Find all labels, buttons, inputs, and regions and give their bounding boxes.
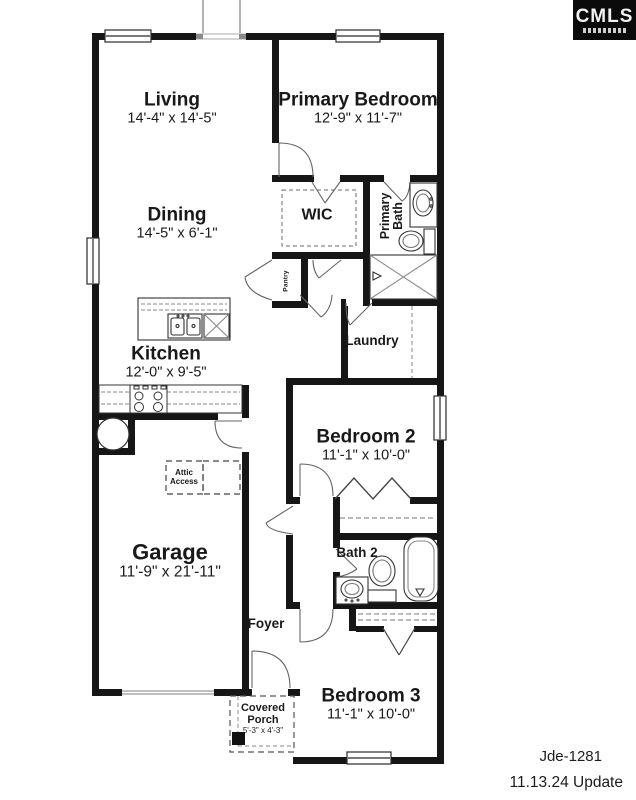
shower [370,255,437,299]
bathtub [404,537,438,601]
room-label-covered-porch: Covered Porch 5'-3" x 4'-3" [230,703,296,735]
foyer-hall-door [266,506,293,534]
bath2-vanity-sink [336,577,368,604]
room-label-dining: Dining 14'-5" x 6'-1" [136,206,217,243]
room-label-garage: Garage 11'-9" x 21'-11" [119,541,221,582]
room-label-bath2: Bath 2 [336,546,377,560]
kitchen-counter [99,385,242,413]
cmls-logo-subtext-line [583,28,627,33]
room-label-foyer: Foyer [248,617,285,631]
garage-door-lines [122,691,214,694]
update-date-text: 11.13.24 Update [510,774,623,792]
room-label-bedroom2: Bedroom 2 11'-1" x 10'-0" [316,428,415,465]
bedroom3-door [300,609,333,642]
cmls-logo: CMLS [573,0,636,40]
room-label-laundry: Laundry [345,334,398,348]
entry-stoop-lines [203,0,240,33]
pantry-door [245,260,272,300]
front-door [252,651,290,688]
floor-plan: Living 14'-4" x 14'-5" Primary Bedroom 1… [0,0,636,800]
bedroom3-closet-doors [383,628,415,655]
room-label-living: Living 14'-4" x 14'-5" [127,91,216,128]
bath2-toilet [368,556,396,602]
room-label-pantry: Pantry [284,270,291,291]
room-label-primary-bedroom: Primary Bedroom 12'-9" x 11'-7" [278,91,437,128]
room-label-wic: WIC [301,208,332,225]
cmls-logo-text: CMLS [576,7,634,26]
room-label-attic-access: Attic Access [161,469,207,487]
plan-id-text: Jde-1281 [539,748,602,765]
primary-bedroom-door [279,143,313,177]
room-label-kitchen: Kitchen 12'-0" x 9'-5" [125,345,206,382]
stove [130,385,167,413]
room-label-primary-bath: Primary Bath [379,192,405,240]
top-wall-opening [196,33,246,40]
bedroom3-closet-shelf-dashed [358,614,436,620]
hall-door-1 [313,260,341,278]
primary-vanity-sink [410,183,437,227]
kitchen-island [138,298,230,340]
garage-entry-door [215,421,242,448]
wic-double-doors [312,182,340,203]
room-label-bedroom3: Bedroom 3 11'-1" x 10'-0" [321,687,420,724]
bedroom2-closet-bifold [335,478,411,499]
water-heater [97,418,129,450]
bedroom2-door [300,464,333,496]
laundry-door [346,303,372,325]
